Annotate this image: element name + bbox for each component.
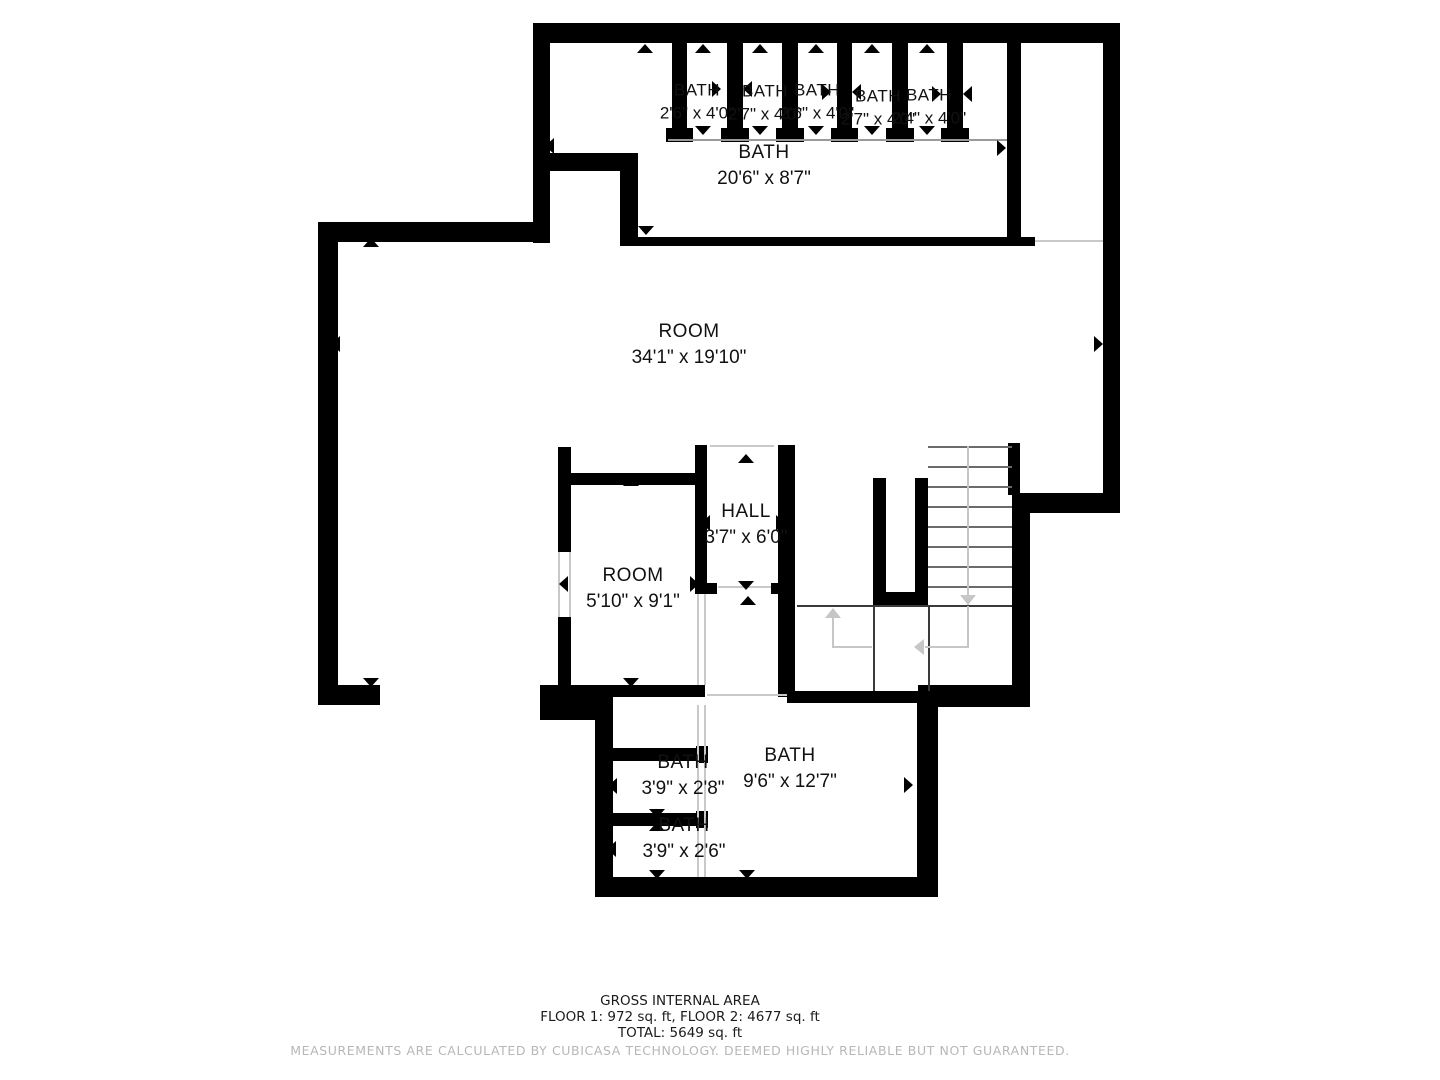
- wall-top: [533, 23, 1120, 43]
- door-marker: [904, 777, 913, 793]
- wall-closet-right: [915, 478, 928, 605]
- window-marker: [545, 138, 554, 154]
- door-line: [710, 445, 774, 447]
- window-marker: [331, 336, 340, 352]
- room-label-stall1: BATH 2'6" x 4'0": [660, 81, 734, 124]
- room-name: ROOM: [632, 321, 747, 343]
- door-marker: [649, 870, 665, 879]
- room-name: BATH: [892, 86, 966, 106]
- door-line: [707, 694, 787, 696]
- stair-tread: [928, 486, 1012, 488]
- room-dimensions: 5'10" x 9'1": [586, 591, 680, 613]
- wall-left-upper: [533, 23, 550, 243]
- wall-right: [1103, 23, 1120, 513]
- wall-bathblock-bottom: [595, 877, 938, 897]
- door-marker: [808, 44, 824, 53]
- wall-mainroom-top: [318, 222, 550, 242]
- gross-internal-area-title: GROSS INTERNAL AREA: [0, 993, 1360, 1009]
- room-name: BATH: [641, 752, 724, 774]
- wall-closet-left: [873, 478, 886, 605]
- stair-tread: [928, 566, 1012, 568]
- wall-smallroom-left-upper: [558, 447, 571, 552]
- wall-bathblock-right: [917, 691, 938, 897]
- door-marker: [739, 870, 755, 879]
- room-dimensions: 3'9" x 2'8": [641, 778, 724, 800]
- room-name: HALL: [704, 501, 787, 523]
- room-label-bath-top: BATH 20'6" x 8'7": [717, 142, 811, 190]
- path-line: [832, 618, 834, 648]
- stair-center-line: [967, 446, 969, 606]
- path-left-arrow-icon: [914, 639, 924, 655]
- room-label-bath-large: BATH 9'6" x 12'7": [743, 745, 837, 793]
- door-line: [697, 594, 699, 685]
- landing-line: [797, 605, 1012, 607]
- wall-bath-top-bottom: [620, 237, 1035, 246]
- room-name: BATH: [717, 142, 811, 164]
- door-marker: [695, 126, 711, 135]
- landing-line: [928, 607, 930, 691]
- door-line: [1035, 240, 1103, 242]
- room-dimensions: 3'9" x 2'6": [642, 841, 725, 863]
- wall-bathblock-left: [595, 705, 613, 897]
- door-marker: [607, 841, 616, 857]
- stair-tread: [928, 466, 1012, 468]
- wall-stairs-right: [1012, 493, 1030, 707]
- stall-entry-line: [668, 139, 1007, 141]
- door-marker: [690, 576, 699, 592]
- window-marker: [1094, 336, 1103, 352]
- wall-closet-bottom: [873, 592, 928, 605]
- room-name: BATH: [660, 81, 734, 101]
- stair-tread: [928, 506, 1012, 508]
- room-label-small-room: ROOM 5'10" x 9'1": [586, 565, 680, 613]
- door-marker: [623, 678, 639, 687]
- stair-tread: [928, 546, 1012, 548]
- door-marker: [608, 778, 617, 794]
- path-line: [925, 646, 969, 648]
- room-label-bath-small2: BATH 3'9" x 2'6": [642, 815, 725, 863]
- room-label-hall: HALL 3'7" x 6'0": [704, 501, 787, 549]
- wall-hall-right: [778, 445, 795, 697]
- window-marker: [559, 576, 568, 592]
- floor-plan: BATH 2'6" x 4'0" BATH 2'7" x 4'0" BATH 2…: [0, 0, 1440, 1080]
- path-up-arrow-icon: [825, 608, 841, 618]
- door-line: [704, 594, 706, 685]
- stair-tread: [928, 586, 1012, 588]
- room-dimensions: 20'6" x 8'7": [717, 168, 811, 190]
- wall-stalls-right: [1007, 43, 1021, 239]
- landing-line: [873, 607, 875, 691]
- door-marker: [752, 44, 768, 53]
- door-marker: [738, 454, 754, 463]
- door-marker: [738, 581, 754, 590]
- room-name: BATH: [642, 815, 725, 837]
- path-line: [832, 646, 872, 648]
- window-marker: [363, 238, 379, 247]
- door-marker: [638, 226, 654, 235]
- wall-mainroom-bottom-stub: [318, 685, 380, 705]
- wall-smallroom-left-lower: [558, 617, 571, 687]
- room-dimensions: 2'4" x 4'0": [892, 109, 966, 129]
- room-dimensions: 34'1" x 19'10": [632, 347, 747, 369]
- room-label-stall5: BATH 2'4" x 4'0": [892, 86, 966, 129]
- door-marker: [864, 44, 880, 53]
- door-marker: [623, 477, 639, 486]
- wall-bathblock-top: [787, 691, 918, 703]
- wall-jog-v: [620, 153, 638, 243]
- door-marker: [695, 44, 711, 53]
- stair-down-arrow-icon: [960, 595, 976, 605]
- window-line: [569, 552, 571, 617]
- room-label-bath-small1: BATH 3'9" x 2'8": [641, 752, 724, 800]
- door-marker: [919, 44, 935, 53]
- door-marker: [740, 596, 756, 605]
- total-area: TOTAL: 5649 sq. ft: [0, 1025, 1360, 1041]
- floor-areas: FLOOR 1: 972 sq. ft, FLOOR 2: 4677 sq. f…: [0, 1009, 1360, 1025]
- door-marker: [637, 44, 653, 53]
- room-dimensions: 3'7" x 6'0": [704, 527, 787, 549]
- disclaimer: MEASUREMENTS ARE CALCULATED BY CUBICASA …: [0, 1042, 1360, 1060]
- room-dimensions: 9'6" x 12'7": [743, 771, 837, 793]
- door-marker: [997, 140, 1006, 156]
- room-label-main-room: ROOM 34'1" x 19'10": [632, 321, 747, 369]
- door-marker: [808, 126, 824, 135]
- path-line: [967, 606, 969, 647]
- door-marker: [363, 678, 379, 687]
- stair-tread: [928, 446, 1012, 448]
- door-marker: [752, 126, 768, 135]
- wall-mainroom-left: [318, 222, 338, 705]
- stair-tread: [928, 526, 1012, 528]
- room-name: ROOM: [586, 565, 680, 587]
- room-dimensions: 2'6" x 4'0": [660, 104, 734, 124]
- room-name: BATH: [743, 745, 837, 767]
- footer: GROSS INTERNAL AREA FLOOR 1: 972 sq. ft,…: [0, 993, 1360, 1060]
